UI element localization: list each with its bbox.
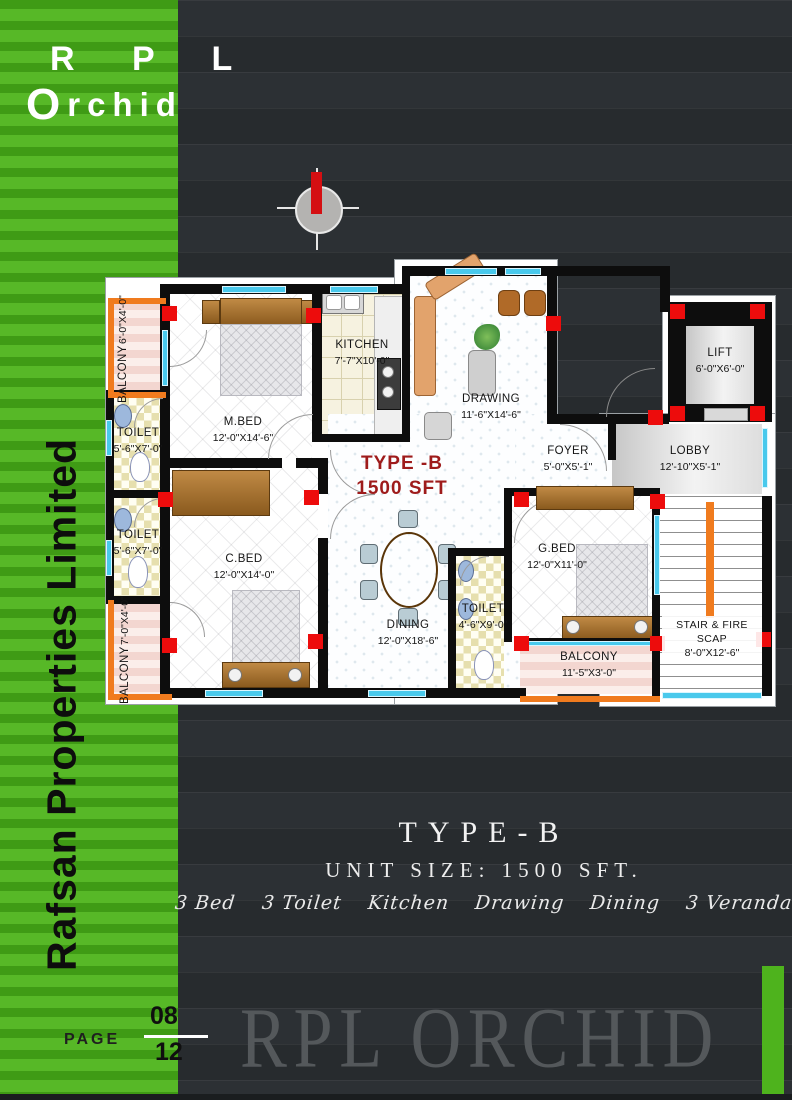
room-dims: 12'-0"X11'-0": [516, 558, 598, 572]
balcony-border: [108, 600, 114, 700]
wall: [318, 538, 328, 698]
logo-rpl: R P L: [50, 40, 256, 79]
room-label-dining: DINING 12'-0"X18'-6": [362, 618, 454, 648]
room-name: LIFT: [686, 346, 754, 362]
toilet-icon: [130, 452, 150, 482]
shoe-rack-icon: [536, 486, 634, 510]
window: [162, 330, 168, 386]
bed-icon: [220, 324, 302, 396]
room-label-cbed: C.BED 12'-0"X14'-0": [196, 552, 292, 582]
room-label-lift: LIFT 6'-0"X6'-0": [686, 346, 754, 376]
bed-headboard-icon: [220, 298, 302, 326]
summary-subtitle: UNIT SIZE: 1500 SFT.: [178, 858, 790, 883]
column-marker: [648, 410, 663, 425]
window: [445, 268, 497, 275]
room-name: STAIR & FIRE SCAP: [660, 618, 764, 646]
room-label-balcony-br: BALCONY 11'-5"X3'-0": [534, 650, 644, 680]
window: [654, 515, 660, 595]
washbasin-icon: [114, 404, 132, 428]
room-dims: 6'-0"X4'-0": [116, 295, 162, 344]
room-name: LOBBY: [640, 444, 740, 460]
chair-icon: [398, 510, 418, 528]
wall: [318, 458, 328, 494]
wall: [106, 490, 166, 498]
pouf-icon: [524, 290, 546, 316]
room-name: BALCONY: [534, 650, 644, 666]
room-dims: 12'-0"X18'-6": [362, 634, 454, 648]
wall: [547, 266, 669, 276]
wall: [608, 424, 616, 460]
page-label: PAGE: [64, 1031, 120, 1049]
sofa-icon: [414, 296, 436, 396]
toilet-icon: [474, 650, 494, 680]
room-label-kitchen: KITCHEN 7'-7"X10'-0": [318, 338, 406, 368]
room-dims: 11'-5"X3'-0": [534, 666, 644, 680]
plan-type-text: TYPE -B: [350, 452, 454, 477]
speaker-icon: [228, 668, 242, 682]
chair-icon: [360, 544, 378, 564]
room-dims: 11'-6"X14'-6": [438, 408, 544, 422]
room-name: TOILET: [110, 426, 166, 442]
chair-icon: [360, 580, 378, 600]
room-dims: 7'-0"X4'-0": [118, 596, 164, 645]
dining-table-icon: [380, 532, 438, 608]
room-name: G.BED: [516, 542, 598, 558]
column-marker: [750, 406, 765, 421]
balcony-border: [520, 696, 660, 702]
column-marker: [546, 316, 561, 331]
room-label-toilet-3: TOILET 4'-6"X9'-0": [452, 602, 514, 632]
sink-basin-icon: [344, 295, 360, 310]
window: [528, 641, 654, 646]
summary-title: TYPE-B: [178, 816, 790, 850]
column-marker: [670, 406, 685, 421]
column-marker: [162, 638, 177, 653]
column-marker: [158, 492, 173, 507]
column-marker: [750, 304, 765, 319]
room-name: DRAWING: [438, 392, 544, 408]
sink-basin-icon: [326, 295, 342, 310]
room-label-toilet-2: TOILET 5'-6"X7'-0": [110, 528, 166, 558]
room-label-drawing: DRAWING 11'-6"X14'-6": [438, 392, 544, 422]
wardrobe-icon: [172, 470, 270, 516]
room-name: M.BED: [195, 415, 291, 431]
window: [368, 690, 426, 697]
compass-north-needle: [311, 172, 322, 214]
room-label-lobby: LOBBY 12'-10"X5'-1": [640, 444, 740, 474]
feature-item: Kitchen: [366, 892, 450, 914]
room-name: BALCONY: [118, 647, 164, 705]
feature-strip: 3 Bed 3 Toilet Kitchen Drawing Dining 3 …: [178, 890, 790, 916]
logo-orchid: Orchid: [26, 80, 183, 130]
column-marker: [308, 634, 323, 649]
room-label-mbed: M.BED 12'-0"X14'-6": [195, 415, 291, 445]
bed-icon: [232, 590, 300, 664]
room-dims: 5'-0"X5'-1": [532, 460, 604, 474]
feature-item: 3 Veranda: [685, 892, 792, 914]
room-label-toilet-1: TOILET 5'-6"X7'-0": [110, 426, 166, 456]
brochure-page: R P L Orchid Rafsan Properties Limited: [0, 0, 792, 1100]
room-dims: 4'-6"X9'-0": [452, 618, 514, 632]
room-label-balcony-tl: BALCONY 6'-0"X4'-0": [116, 308, 162, 390]
room-dims: 5'-6"X7'-0": [110, 544, 166, 558]
room-dims: 12'-0"X14'-6": [195, 431, 291, 445]
burner-icon: [382, 366, 394, 378]
sidebar-brand-text: Rafsan Properties Limited: [30, 430, 94, 978]
coffee-table-icon: [468, 350, 496, 396]
room-dims: 12'-0"X14'-0": [196, 568, 292, 582]
room-dims: 8'-0"X12'-6": [660, 646, 764, 660]
feature-item: Dining: [589, 892, 661, 914]
column-marker: [306, 308, 321, 323]
wall: [160, 458, 282, 468]
column-marker: [670, 304, 685, 319]
window: [505, 268, 541, 275]
watermark-text: RPL ORCHID: [240, 990, 720, 1089]
column-marker: [514, 492, 529, 507]
wall: [312, 434, 410, 442]
window: [762, 428, 768, 488]
balcony-border: [108, 298, 114, 398]
column-marker: [514, 636, 529, 651]
wall: [296, 458, 318, 468]
column-marker: [162, 306, 177, 321]
burner-icon: [382, 386, 394, 398]
plan-type-label: TYPE -B 1500 SFT: [350, 452, 454, 501]
feature-item: 3 Bed: [174, 892, 237, 914]
window: [205, 690, 263, 697]
nightstand-icon: [202, 300, 220, 324]
column-marker: [304, 490, 319, 505]
room-dims: 12'-10"X5'-1": [640, 460, 740, 474]
wall: [448, 548, 506, 556]
room-dims: 7'-7"X10'-0": [318, 354, 406, 368]
room-name: KITCHEN: [318, 338, 406, 354]
room-label-stair: STAIR & FIRE SCAP 8'-0"X12'-6": [660, 618, 764, 661]
room-label-balcony-bl: BALCONY 7'-0"X4'-0": [118, 610, 164, 690]
room-name: C.BED: [196, 552, 292, 568]
logo-orchid-rest: rchid: [67, 86, 183, 123]
wall: [547, 266, 557, 418]
room-name: BALCONY: [116, 346, 162, 404]
room-name: DINING: [362, 618, 454, 634]
toilet-icon: [128, 556, 148, 588]
room-name: FOYER: [532, 444, 604, 460]
logo-orchid-initial: O: [26, 80, 67, 129]
page-number: 08: [150, 1002, 178, 1031]
stair-stringer-icon: [706, 502, 714, 618]
window: [330, 286, 378, 293]
room-name: TOILET: [452, 602, 514, 618]
plan-size-text: 1500 SFT: [350, 477, 454, 502]
window: [222, 286, 286, 293]
column-marker: [650, 494, 665, 509]
page-total: 12: [155, 1038, 183, 1067]
room-dims: 5'-6"X7'-0": [110, 442, 166, 456]
pouf-icon: [498, 290, 520, 316]
room-label-foyer: FOYER 5'-0"X5'-1": [532, 444, 604, 474]
lamp-icon: [634, 620, 648, 634]
feature-item: Drawing: [474, 892, 566, 914]
room-dims: 6'-0"X6'-0": [686, 362, 754, 376]
right-green-bar: [762, 966, 784, 1100]
wall: [762, 496, 772, 696]
lift-door-icon: [704, 408, 748, 421]
lamp-icon: [566, 620, 580, 634]
room-name: TOILET: [110, 528, 166, 544]
speaker-icon: [288, 668, 302, 682]
window: [662, 692, 762, 699]
room-label-gbed: G.BED 12'-0"X11'-0": [516, 542, 598, 572]
bottom-edge-line: [0, 1094, 792, 1100]
feature-item: 3 Toilet: [261, 892, 343, 914]
